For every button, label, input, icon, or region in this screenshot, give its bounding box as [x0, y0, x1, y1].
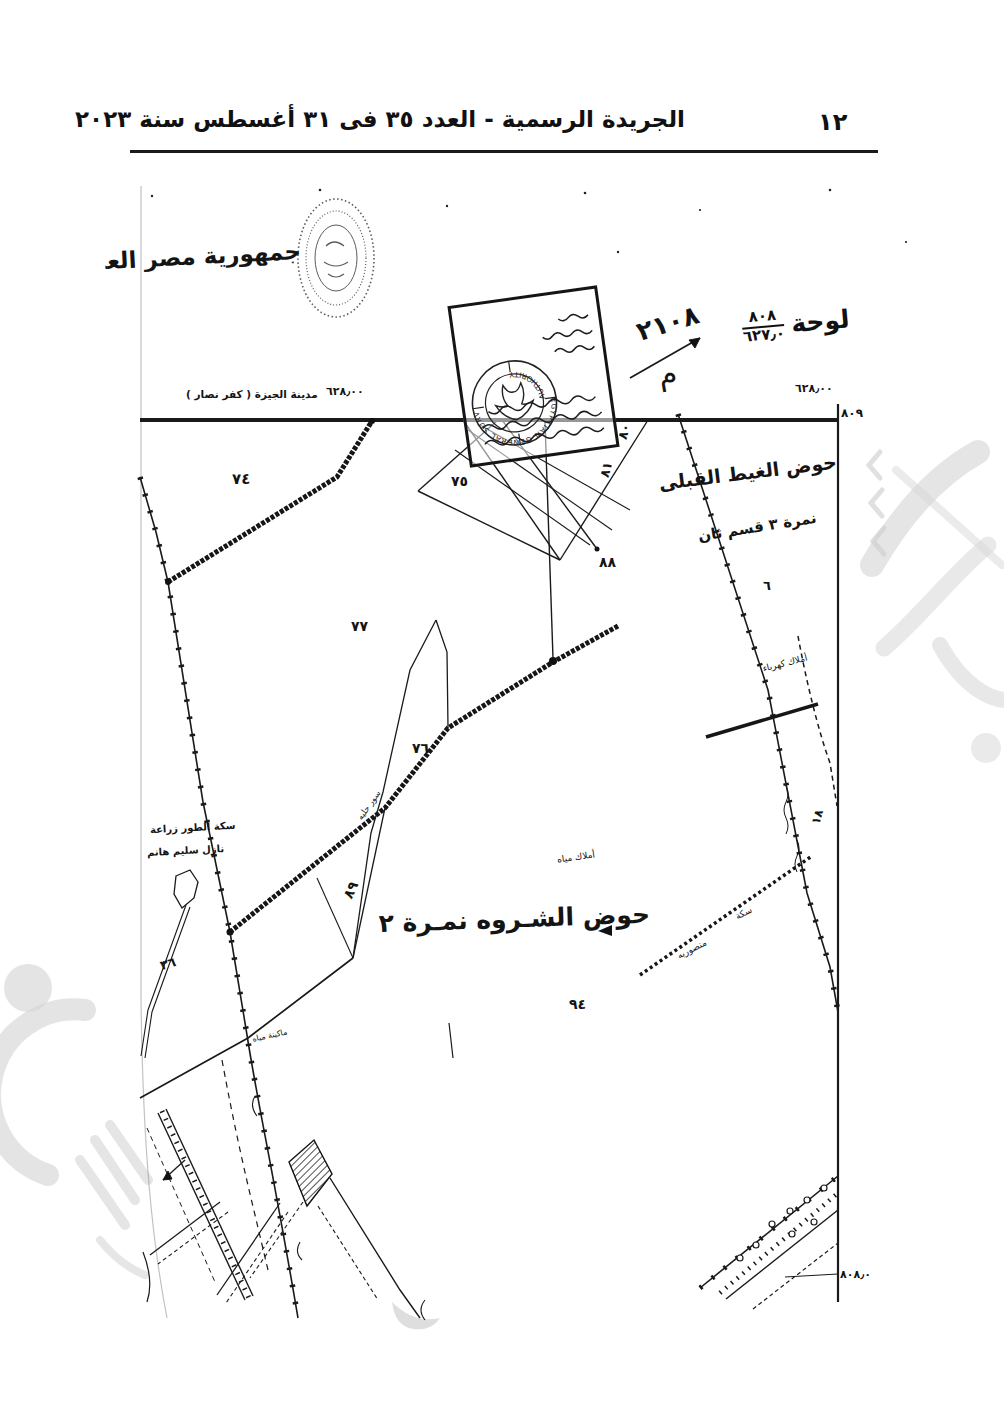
parcel-74: ٧٤	[232, 470, 250, 488]
coordinate-right: ٦٢٨٫٠٠	[795, 382, 833, 395]
east-basin-number: ٦	[763, 578, 771, 593]
gazette-page: الجريدة الرسمية - العدد ٣٥ فى ٣١ أغسطس س…	[0, 0, 1004, 1418]
coordinate-left: ٦٢٨٫٠٠	[326, 385, 364, 398]
plate-word: لوحة	[790, 304, 851, 338]
scan-edges	[141, 186, 167, 1318]
survey-junction-dots	[165, 418, 600, 936]
parcel-75: ٧٥	[451, 473, 468, 489]
stamp-graphics: EGYPTIAN GENERAL SURVEY AUTHORITY	[451, 289, 616, 465]
stamp-content-upside-down: EGYPTIAN GENERAL SURVEY AUTHORITY	[451, 289, 616, 465]
tick-boundary-east	[678, 414, 838, 1012]
plate-denominator: ٦٢٧٫٠	[742, 326, 785, 345]
plate-fraction: ٨٠٨ ٦٢٧٫٠	[741, 307, 786, 345]
survey-authority-stamp: EGYPTIAN GENERAL SURVEY AUTHORITY	[447, 285, 619, 467]
tree-lined-road-southeast	[700, 1176, 838, 1309]
east-canal-lines	[784, 636, 837, 872]
parcel-94: ٩٤	[569, 996, 586, 1012]
hatched-building	[289, 1140, 332, 1206]
republic-seal	[298, 199, 374, 317]
survey-map-linework	[0, 0, 1004, 1418]
parcel-77: ٧٧	[351, 618, 368, 634]
corner-coordinate: ٨٠٩	[841, 406, 863, 420]
parcel-88: ٨٨	[599, 554, 616, 570]
parcel-76: ٧٦	[412, 740, 429, 756]
hatched-road	[168, 421, 818, 932]
bottom-right-coordinate: ٨٠٨٫٠	[840, 1268, 871, 1281]
city-label: مدينة الجيزة ( كفر نصار )	[186, 388, 318, 400]
